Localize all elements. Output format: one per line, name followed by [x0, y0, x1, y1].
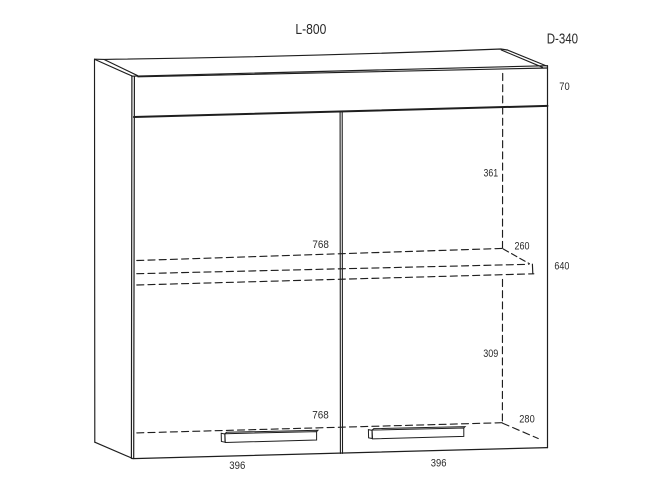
svg-text:280: 280 — [519, 413, 534, 425]
svg-text:768: 768 — [312, 409, 329, 421]
svg-text:361: 361 — [484, 168, 499, 180]
svg-text:768: 768 — [312, 239, 329, 251]
svg-text:309: 309 — [483, 348, 498, 360]
svg-text:70: 70 — [559, 81, 569, 93]
svg-text:640: 640 — [554, 260, 569, 272]
svg-text:D-340: D-340 — [547, 32, 578, 48]
svg-text:L-800: L-800 — [295, 22, 326, 38]
svg-text:396: 396 — [431, 458, 447, 470]
svg-text:260: 260 — [515, 240, 530, 252]
svg-text:396: 396 — [229, 460, 245, 472]
